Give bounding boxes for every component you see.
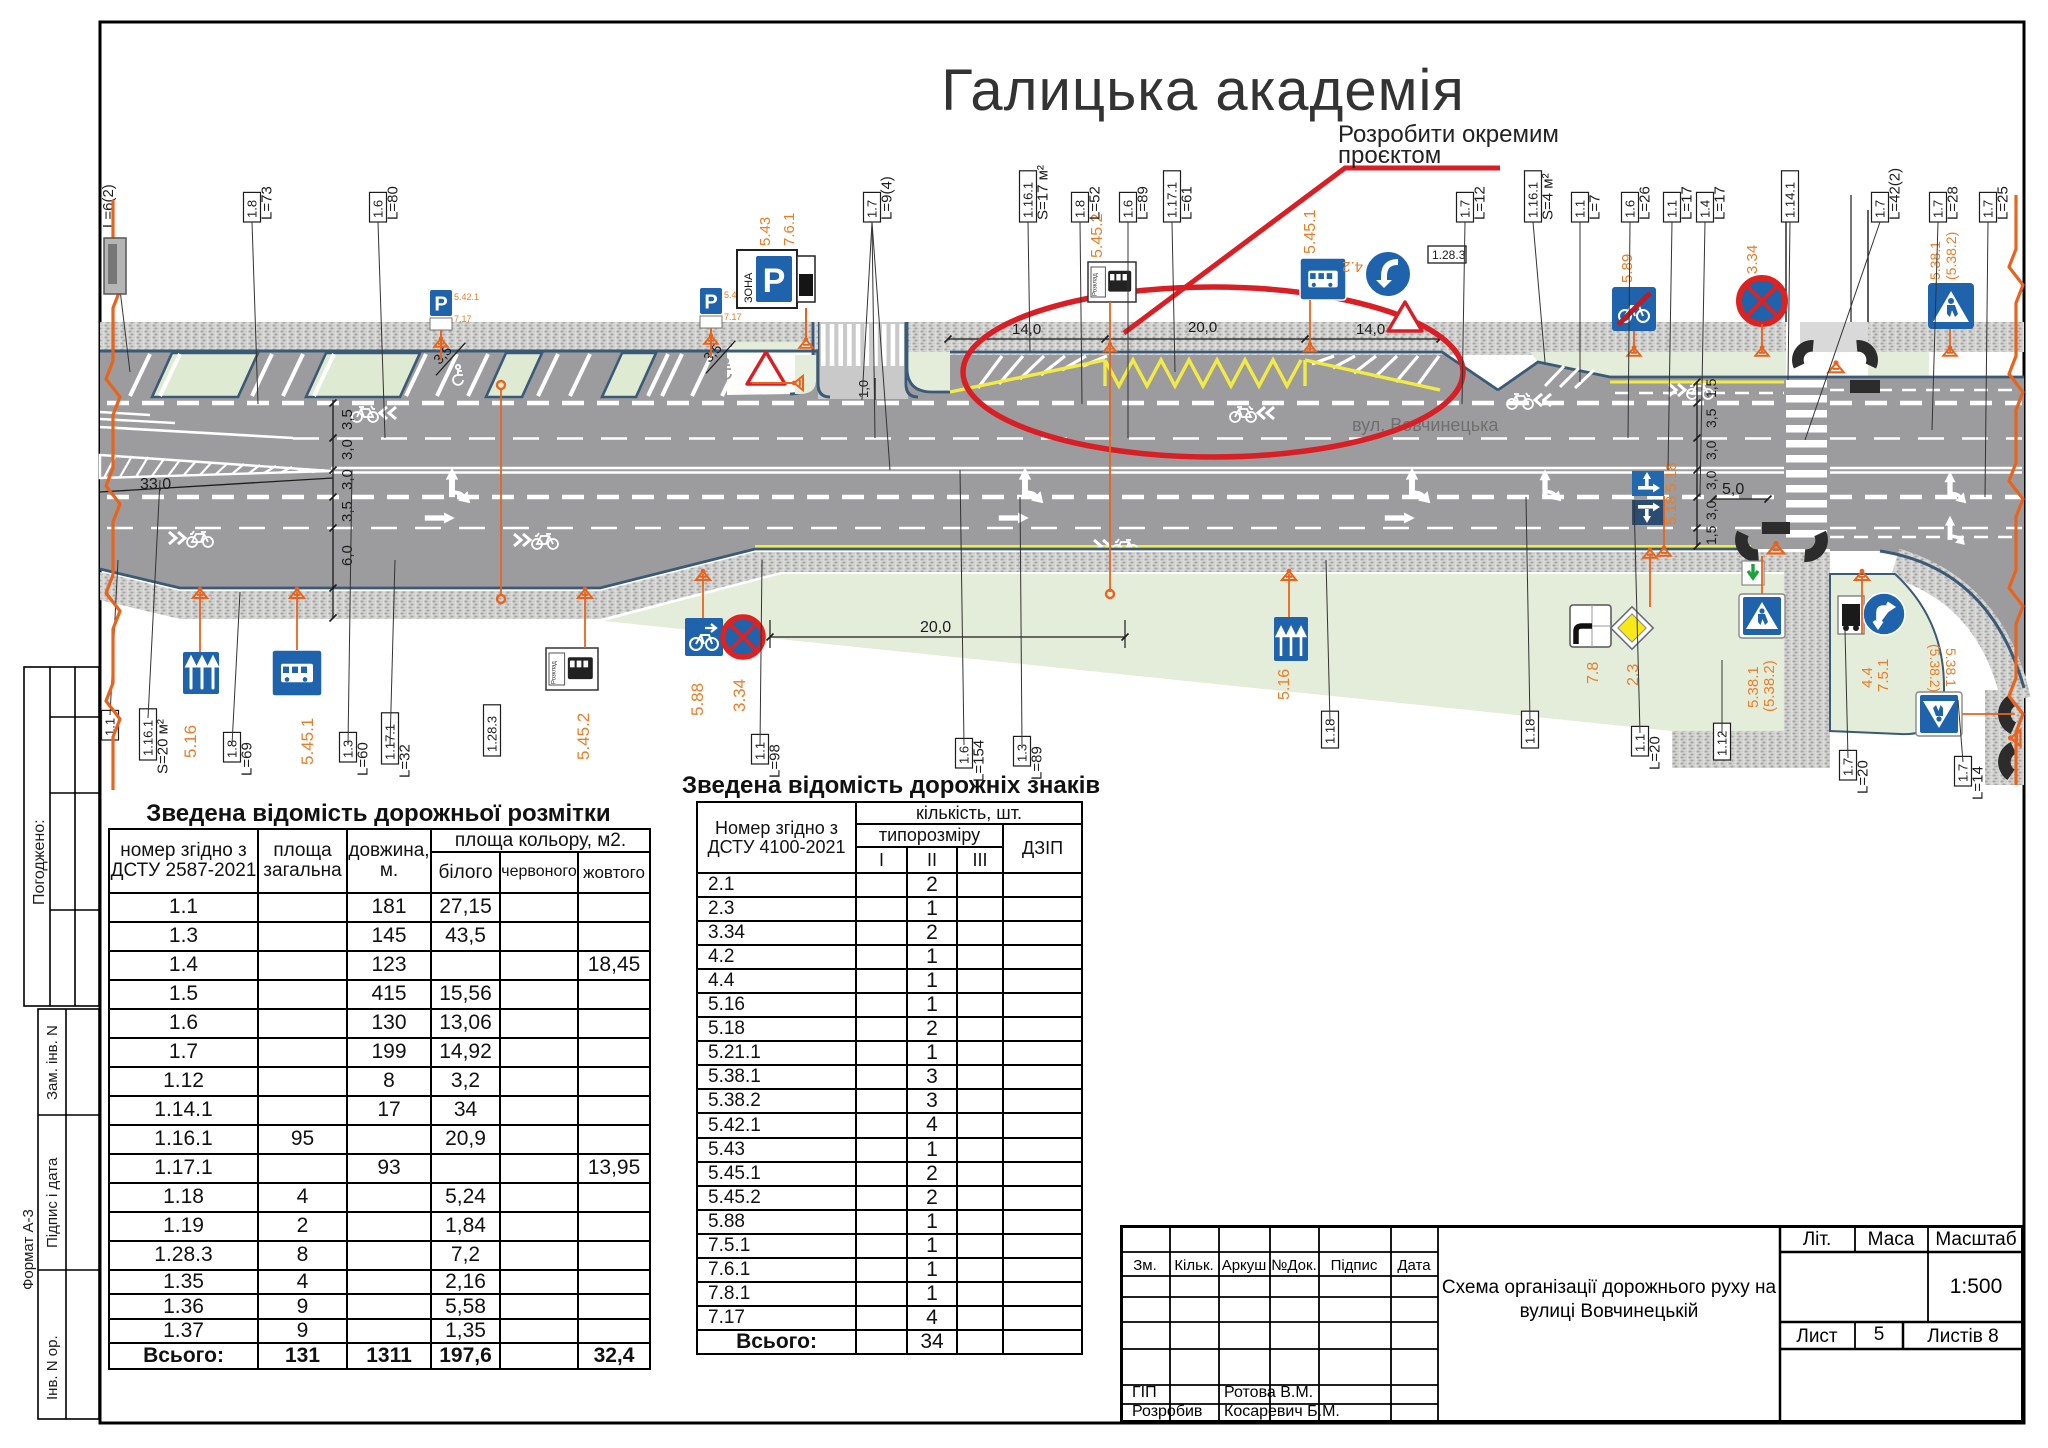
svg-text:7.17: 7.17 bbox=[724, 312, 742, 322]
svg-text:Літ.: Літ. bbox=[1803, 1229, 1832, 1250]
svg-text:1,0: 1,0 bbox=[856, 380, 871, 398]
svg-text:Аркуш: Аркуш bbox=[1222, 1257, 1267, 1274]
svg-text:1,5: 1,5 bbox=[1703, 525, 1719, 545]
svg-text:1.7: 1.7 bbox=[1841, 758, 1856, 776]
svg-text:L=9(4): L=9(4) bbox=[879, 176, 896, 220]
svg-text:P: P bbox=[434, 293, 447, 315]
svg-text:6,0: 6,0 bbox=[339, 545, 356, 566]
svg-text:5.45.1: 5.45.1 bbox=[1302, 209, 1319, 254]
svg-text:5.38.1: 5.38.1 bbox=[1943, 648, 1959, 687]
svg-text:5.43: 5.43 bbox=[757, 217, 774, 246]
svg-text:вулиці Вовчинецькій: вулиці Вовчинецькій bbox=[1520, 1301, 1699, 1322]
svg-text:3,0: 3,0 bbox=[339, 439, 356, 460]
svg-text:5.88: 5.88 bbox=[688, 683, 707, 716]
svg-text:Лист: Лист bbox=[1796, 1326, 1838, 1347]
svg-text:1.7: 1.7 bbox=[865, 200, 880, 218]
svg-text:5.16: 5.16 bbox=[181, 725, 200, 758]
svg-text:Розробив: Розробив bbox=[1132, 1403, 1202, 1420]
svg-text:1.6: 1.6 bbox=[1121, 200, 1136, 218]
svg-text:20,0: 20,0 bbox=[920, 619, 951, 636]
svg-text:L=17: L=17 bbox=[1679, 186, 1696, 220]
svg-text:S=17 м²: S=17 м² bbox=[1035, 165, 1052, 220]
svg-text:4.2: 4.2 bbox=[1342, 258, 1363, 275]
svg-text:7.6.1: 7.6.1 bbox=[781, 213, 798, 246]
svg-text:Інв. N ор.: Інв. N ор. bbox=[44, 1335, 61, 1400]
svg-text:5,0: 5,0 bbox=[1722, 481, 1744, 498]
svg-text:1.1: 1.1 bbox=[1665, 200, 1680, 218]
svg-text:ЗОНА: ЗОНА bbox=[743, 272, 755, 303]
svg-text:L=14: L=14 bbox=[1970, 766, 1987, 800]
svg-text:1.16.1: 1.16.1 bbox=[1021, 182, 1036, 218]
svg-text:3,0: 3,0 bbox=[1703, 470, 1719, 490]
svg-text:S=20 м²: S=20 м² bbox=[155, 719, 172, 774]
svg-text:1.7: 1.7 bbox=[1873, 200, 1888, 218]
svg-text:1.7: 1.7 bbox=[1956, 764, 1971, 782]
svg-text:1:500: 1:500 bbox=[1950, 1275, 2003, 1298]
svg-text:L=20: L=20 bbox=[1855, 760, 1872, 794]
svg-text:3,5: 3,5 bbox=[339, 501, 356, 522]
svg-text:1.6: 1.6 bbox=[957, 746, 972, 764]
svg-text:Підпис: Підпис bbox=[1331, 1257, 1378, 1274]
svg-text:(5.38.2): (5.38.2) bbox=[1761, 660, 1778, 712]
svg-text:7.8: 7.8 bbox=[1585, 662, 1602, 684]
svg-text:5.38.1: 5.38.1 bbox=[1745, 666, 1762, 708]
svg-text:5.42.1: 5.42.1 bbox=[454, 292, 479, 302]
svg-text:1.7: 1.7 bbox=[1458, 200, 1473, 218]
svg-text:20,0: 20,0 bbox=[1188, 319, 1217, 336]
svg-text:1.7: 1.7 bbox=[1981, 200, 1996, 218]
svg-text:L=28: L=28 bbox=[1945, 186, 1962, 220]
svg-text:L=73: L=73 bbox=[259, 186, 276, 220]
svg-text:1.28.3: 1.28.3 bbox=[1432, 248, 1466, 262]
svg-text:(5.38.2): (5.38.2) bbox=[1927, 644, 1943, 692]
svg-text:L=69: L=69 bbox=[239, 742, 256, 776]
svg-text:L=26: L=26 bbox=[1637, 186, 1654, 220]
svg-text:P: P bbox=[704, 291, 717, 313]
svg-text:Формат А-3: Формат А-3 bbox=[20, 1209, 37, 1290]
svg-text:Погоджено:: Погоджено: bbox=[31, 819, 48, 905]
svg-text:1.18: 1.18 bbox=[1523, 719, 1538, 744]
svg-text:Кільк.: Кільк. bbox=[1174, 1257, 1213, 1274]
svg-text:L=12: L=12 bbox=[1472, 186, 1489, 220]
svg-text:1.8: 1.8 bbox=[245, 200, 260, 218]
svg-text:1.17.1: 1.17.1 bbox=[1165, 182, 1180, 218]
svg-text:5.45.2: 5.45.2 bbox=[574, 713, 593, 760]
svg-text:4.4: 4.4 bbox=[1859, 667, 1876, 688]
svg-text:L=80: L=80 bbox=[385, 186, 402, 220]
svg-text:L=42(2): L=42(2) bbox=[1887, 168, 1904, 220]
svg-text:№Док.: №Док. bbox=[1271, 1257, 1317, 1274]
svg-text:1.7: 1.7 bbox=[1931, 200, 1946, 218]
svg-text:7.17: 7.17 bbox=[454, 314, 472, 324]
svg-text:L=25: L=25 bbox=[1995, 186, 2012, 220]
svg-text:1.6: 1.6 bbox=[371, 200, 386, 218]
svg-text:2.3: 2.3 bbox=[1625, 664, 1642, 686]
svg-text:5: 5 bbox=[1874, 1324, 1885, 1345]
svg-text:Галицька академія: Галицька академія bbox=[941, 58, 1465, 123]
svg-text:3.34: 3.34 bbox=[730, 679, 749, 712]
svg-text:1.28.3: 1.28.3 bbox=[485, 716, 500, 752]
svg-text:Косаревич Б.М.: Косаревич Б.М. bbox=[1224, 1403, 1340, 1420]
svg-text:3,0: 3,0 bbox=[339, 469, 356, 490]
svg-text:L=60: L=60 bbox=[355, 742, 372, 776]
svg-text:3,5: 3,5 bbox=[339, 409, 356, 430]
svg-text:5.89: 5.89 bbox=[1619, 254, 1636, 283]
svg-text:5.45.1: 5.45.1 bbox=[298, 718, 317, 765]
svg-text:14,0: 14,0 bbox=[1012, 321, 1041, 338]
svg-text:1.16.1: 1.16.1 bbox=[1526, 182, 1541, 218]
svg-text:Маса: Маса bbox=[1868, 1229, 1915, 1250]
svg-text:L=32: L=32 bbox=[397, 744, 414, 778]
svg-text:5.38.1: 5.38.1 bbox=[1927, 241, 1943, 280]
svg-text:Масштаб: Масштаб bbox=[1935, 1229, 2016, 1250]
svg-text:Розклад: Розклад bbox=[1093, 273, 1099, 296]
svg-text:(5.38.2): (5.38.2) bbox=[1943, 232, 1959, 280]
svg-text:ГІП: ГІП bbox=[1132, 1384, 1157, 1401]
svg-text:1.16.1: 1.16.1 bbox=[141, 720, 156, 756]
svg-text:3,5: 3,5 bbox=[1703, 408, 1719, 428]
svg-text:1.14.1: 1.14.1 bbox=[1783, 182, 1798, 218]
svg-text:3,0: 3,0 bbox=[1703, 500, 1719, 520]
svg-text:1.8: 1.8 bbox=[1073, 200, 1088, 218]
svg-text:3,0: 3,0 bbox=[1703, 440, 1719, 460]
svg-text:1.3: 1.3 bbox=[1015, 744, 1030, 762]
svg-text:L=17: L=17 bbox=[1712, 186, 1729, 220]
svg-text:7.5.1: 7.5.1 bbox=[1875, 659, 1892, 692]
svg-text:L=7: L=7 bbox=[1587, 195, 1604, 220]
svg-text:1,5: 1,5 bbox=[1703, 378, 1719, 398]
svg-text:Схема організації дорожнього р: Схема організації дорожнього руху на bbox=[1442, 1277, 1777, 1298]
svg-text:14,0: 14,0 bbox=[1356, 321, 1385, 338]
svg-text:1.18: 1.18 bbox=[1323, 719, 1338, 744]
svg-text:1.1: 1.1 bbox=[1573, 200, 1588, 218]
svg-text:3.34: 3.34 bbox=[1744, 245, 1761, 274]
svg-text:Дата: Дата bbox=[1397, 1257, 1431, 1274]
svg-text:5.18 5.18: 5.18 5.18 bbox=[1663, 462, 1680, 525]
svg-text:L=52: L=52 bbox=[1087, 186, 1104, 220]
svg-text:Ротова В.М.: Ротова В.М. bbox=[1224, 1384, 1313, 1401]
svg-text:1.4: 1.4 bbox=[1698, 200, 1713, 218]
svg-text:Зм.: Зм. bbox=[1133, 1257, 1157, 1274]
svg-text:S=4 м²: S=4 м² bbox=[1540, 173, 1557, 220]
svg-text:Підпис і дата: Підпис і дата bbox=[44, 1157, 61, 1248]
svg-text:Розклад: Розклад bbox=[551, 661, 557, 684]
svg-text:проєктом: проєктом bbox=[1338, 142, 1441, 169]
svg-text:Зам. інв. N: Зам. інв. N bbox=[44, 1025, 61, 1100]
svg-text:P: P bbox=[763, 262, 786, 300]
svg-text:L=89: L=89 bbox=[1135, 186, 1152, 220]
svg-text:5.16: 5.16 bbox=[1276, 669, 1293, 700]
svg-text:Листів 8: Листів 8 bbox=[1927, 1326, 1998, 1347]
svg-text:1.6: 1.6 bbox=[1623, 200, 1638, 218]
svg-text:1.1: 1.1 bbox=[1633, 734, 1648, 752]
svg-text:L=20: L=20 bbox=[1647, 736, 1664, 770]
svg-text:33,0: 33,0 bbox=[140, 476, 171, 493]
svg-text:L=61: L=61 bbox=[1179, 186, 1196, 220]
